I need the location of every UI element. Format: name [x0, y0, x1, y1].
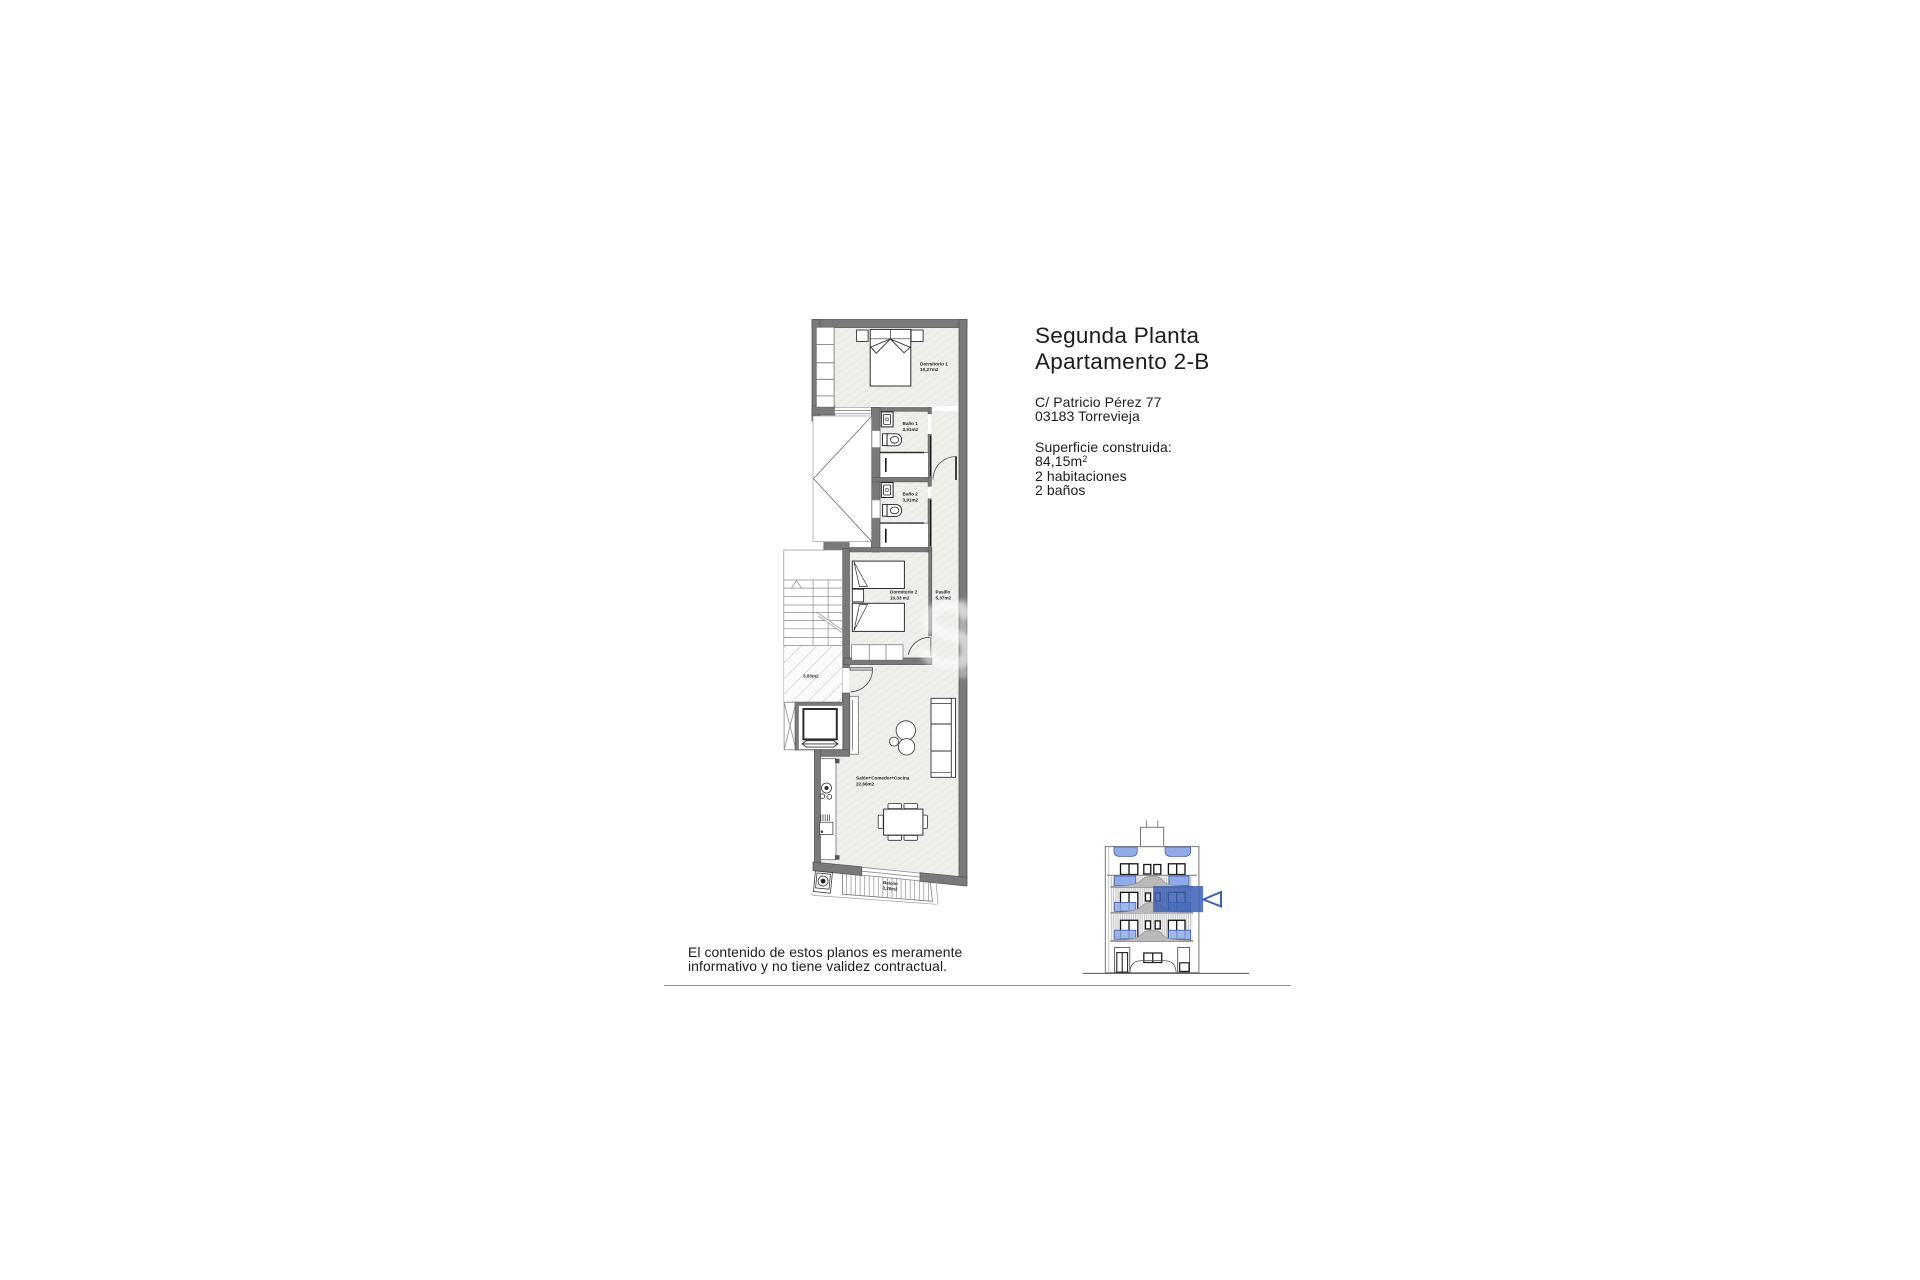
svg-text:10,33 m2: 10,33 m2 — [890, 596, 910, 601]
svg-text:Dormitorio 1: Dormitorio 1 — [920, 361, 948, 366]
svg-text:3,91m2: 3,91m2 — [903, 427, 919, 432]
svg-text:Dormitorio 2: Dormitorio 2 — [890, 590, 918, 595]
svg-text:3,91m2: 3,91m2 — [903, 498, 919, 503]
svg-text:Baño 1: Baño 1 — [903, 421, 919, 426]
svg-text:10,27m2: 10,27m2 — [920, 367, 939, 372]
svg-text:22,66m2: 22,66m2 — [856, 782, 875, 787]
svg-text:Baño 2: Baño 2 — [903, 492, 919, 497]
svg-text:3,83m2: 3,83m2 — [803, 674, 819, 679]
svg-text:S: S — [916, 582, 980, 689]
svg-text:Salón+Comedor+Cocina: Salón+Comedor+Cocina — [856, 776, 910, 781]
